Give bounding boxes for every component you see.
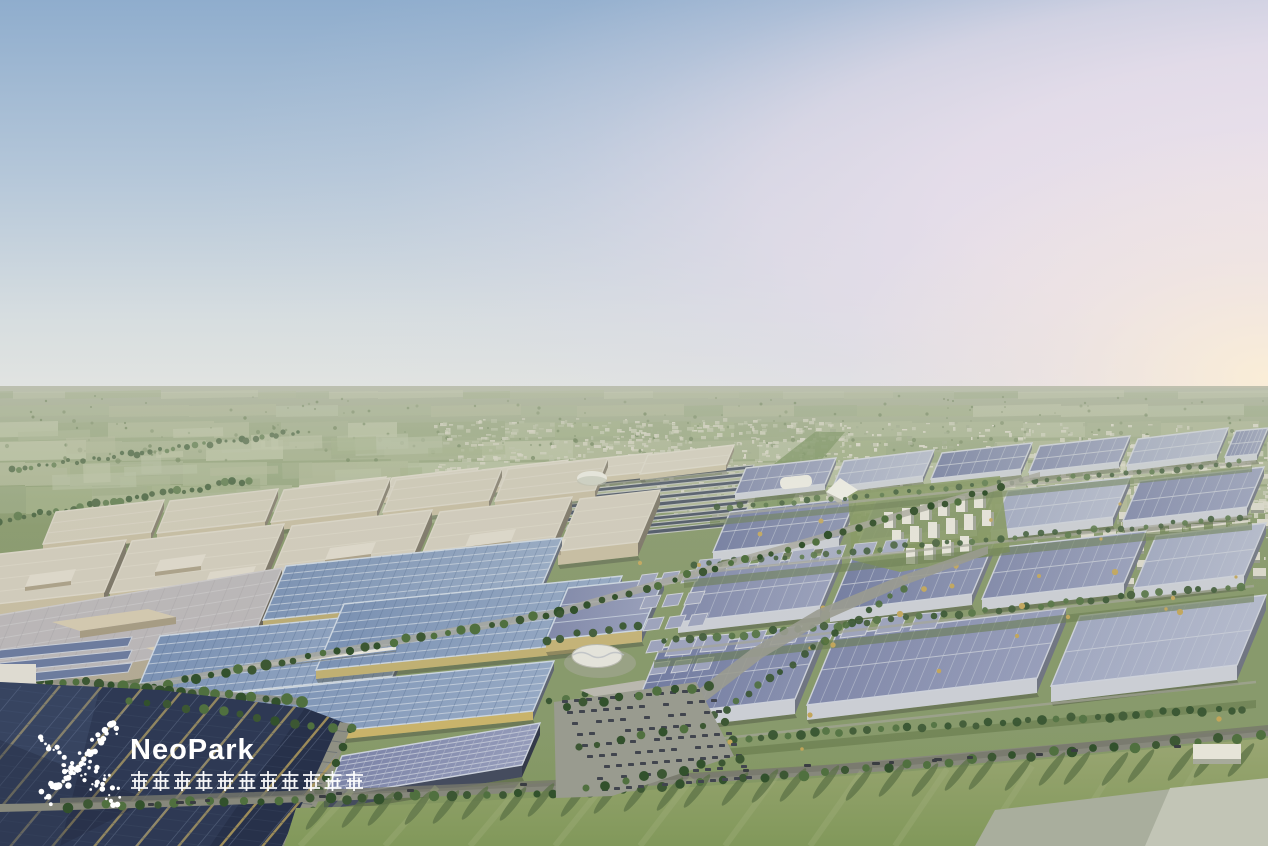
svg-text:NeoPark: NeoPark [130,734,255,766]
